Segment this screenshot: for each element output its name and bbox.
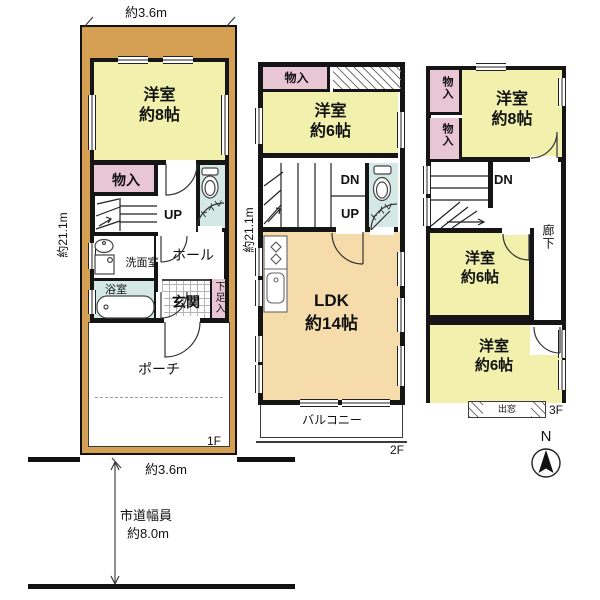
label-porch-1f: ポーチ <box>94 361 224 379</box>
room-label-ldk-2f: LDK 約14帖 <box>263 290 400 336</box>
room-name: 洋室 <box>94 86 225 106</box>
window-mark <box>476 63 506 71</box>
label-dn-3f: DN <box>494 172 524 188</box>
compass-north-label: N <box>536 428 556 447</box>
wall-segment <box>263 227 336 232</box>
window-mark <box>342 399 390 407</box>
label-bathroom-1f: 浴室 <box>96 284 136 298</box>
label-washroom-1f: 洗面室 <box>112 257 172 271</box>
bay-window-hatch <box>469 402 483 417</box>
room-label-bedroom6-2f: 洋室 約6帖 <box>263 102 398 142</box>
window-mark <box>255 248 263 276</box>
label-up-2f: UP <box>334 206 366 222</box>
door-gap <box>502 227 530 235</box>
window-mark <box>163 56 193 64</box>
road-far-line <box>28 584 295 589</box>
floor-label-3f: 3F <box>544 403 568 418</box>
window-mark <box>255 365 263 393</box>
door-gap <box>336 226 364 234</box>
room-size: 約6帖 <box>430 357 558 376</box>
compass-icon <box>532 449 560 477</box>
door-gap <box>370 227 394 235</box>
window-mark <box>397 112 405 148</box>
window-mark <box>255 280 263 306</box>
room-size: 約6帖 <box>430 269 530 288</box>
window-mark <box>558 330 566 358</box>
label-entrance-1f: 玄関 <box>164 294 208 312</box>
hatched-area-2f <box>333 67 401 92</box>
label-balcony-2f: バルコニー <box>262 413 402 428</box>
dim-left-1f: 約21.1m <box>56 203 70 267</box>
dim-left-2f: 約21.1m <box>242 198 256 262</box>
window-mark <box>397 346 405 386</box>
window-mark <box>118 56 148 64</box>
porch-1f <box>88 322 230 447</box>
road-boundary-line <box>237 457 295 462</box>
window-mark <box>558 360 566 390</box>
room-washroom-1f <box>94 232 158 278</box>
floor-label-1f: 1F <box>200 434 228 449</box>
room-name: LDK <box>263 290 400 313</box>
label-corridor-3f: 廊下 <box>540 224 556 250</box>
window-mark <box>423 198 431 226</box>
room-size: 約8帖 <box>462 110 562 130</box>
label-storage-2f: 物入 <box>263 71 330 86</box>
wall-segment <box>90 318 229 323</box>
dim-top-1f: 約3.6m <box>104 5 188 21</box>
room-label-bedroom8-1f: 洋室 約8帖 <box>94 86 225 126</box>
label-storage-1f: 物入 <box>94 172 158 190</box>
window-mark <box>423 166 431 194</box>
room-name: 洋室 <box>462 90 562 110</box>
door-gap <box>166 160 196 167</box>
room-size: 約6帖 <box>263 122 398 142</box>
porch-step-line <box>95 397 223 398</box>
bay-window-hatch <box>531 402 545 417</box>
room-label-bedroom6a-3f: 洋室 約6帖 <box>430 250 530 288</box>
floor-plan-canvas: 洋室 約8帖 物入 UP トイレ ホール 洗面室 浴室 玄関 下足入 ポーチ 1… <box>0 0 600 600</box>
wall-segment <box>488 162 493 208</box>
label-road-type: 市道幅員 <box>102 508 190 524</box>
window-mark <box>255 108 263 144</box>
room-name: 洋室 <box>430 250 530 269</box>
room-label-bedroom6b-3f: 洋室 約6帖 <box>430 338 558 376</box>
window-mark <box>397 252 405 286</box>
door-gap <box>164 316 200 324</box>
floor-label-2f: 2F <box>374 443 404 458</box>
label-bay-window-3f: 出窓 <box>482 404 532 415</box>
room-label-bedroom8-3f: 洋室 約8帖 <box>462 90 562 130</box>
label-storage-a-3f: 物入 <box>438 76 454 100</box>
window-mark <box>88 243 96 269</box>
road-boundary-line <box>28 457 80 462</box>
label-road-width: 約8.0m <box>104 526 192 542</box>
window-mark <box>88 290 96 314</box>
label-storage-b-3f: 物入 <box>438 123 454 147</box>
door-gap <box>198 226 222 234</box>
room-size: 約14帖 <box>263 313 400 336</box>
room-name: 洋室 <box>263 102 398 122</box>
room-size: 約8帖 <box>94 106 225 126</box>
door-gap <box>156 292 164 318</box>
dim-frontage: 約3.6m <box>124 462 208 478</box>
window-mark <box>300 399 338 407</box>
room-name: 洋室 <box>430 338 558 357</box>
door-gap <box>530 156 558 164</box>
window-mark <box>255 336 263 362</box>
label-dn-2f: DN <box>334 172 366 188</box>
label-shoe-cabinet-1f: 下足入 <box>211 281 225 314</box>
label-up-1f: UP <box>159 207 187 223</box>
